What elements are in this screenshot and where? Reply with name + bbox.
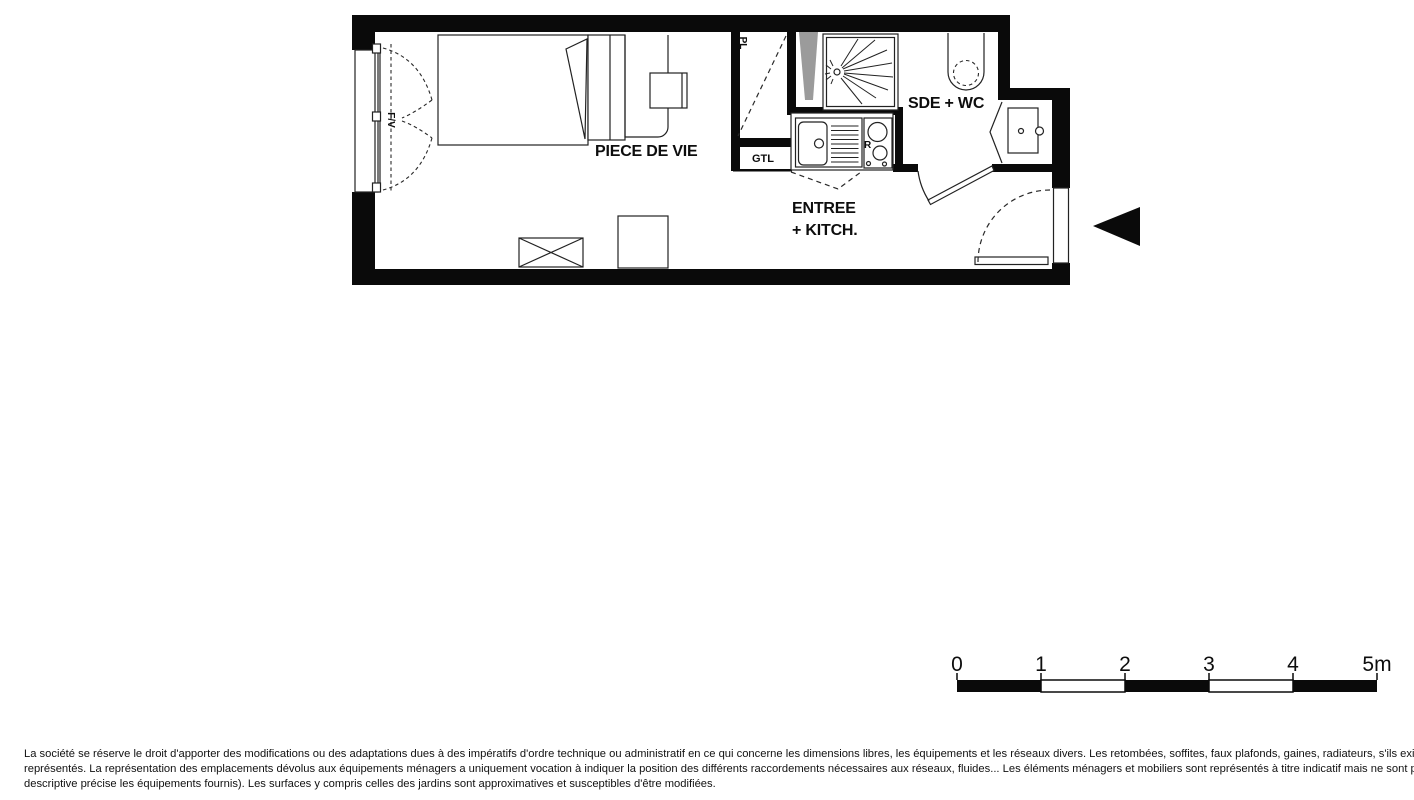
disclaimer-line-3: descriptive précise les équipements four…: [24, 777, 1394, 792]
scale-tick-0: 0: [951, 653, 963, 676]
window-label: F/V: [385, 112, 396, 128]
scale-tick-3: 3: [1203, 653, 1215, 676]
disclaimer: La société se réserve le droit d'apporte…: [24, 747, 1394, 791]
fridge-label: R: [864, 140, 872, 151]
scale-tick-2: 2: [1119, 653, 1131, 676]
folding-door: [990, 102, 1002, 163]
entrance-door-leaf: [975, 257, 1048, 265]
living-room-label: PIECE DE VIE: [595, 143, 698, 160]
bathroom-door: [918, 166, 994, 205]
window-assembly: F/V: [355, 44, 432, 192]
washbasin: [1008, 108, 1044, 153]
disclaimer-line-2: représentés. La représentation des empla…: [24, 762, 1394, 777]
desk-chair: [650, 73, 687, 108]
floor-plan-canvas: F/V PL GTL: [0, 0, 1414, 800]
toilet: [948, 33, 984, 90]
bathroom-label: SDE + WC: [908, 95, 985, 112]
scale-bar: 0 1 2 3 4 5m: [951, 653, 1391, 692]
scale-tick-5m: 5m: [1362, 653, 1391, 676]
kitchen-provision-dashes: [791, 172, 861, 189]
closet-label: PL: [737, 37, 748, 50]
shelf-unit: [588, 35, 625, 140]
coffee-table: [519, 238, 583, 267]
technical-duct-box: GTL: [752, 153, 774, 165]
side-table: [618, 216, 668, 268]
scale-tick-4: 4: [1287, 653, 1299, 676]
closet: PL: [737, 36, 786, 136]
bed: [438, 35, 588, 145]
shower: [823, 34, 898, 110]
kitchenette: R: [791, 113, 893, 189]
entrance-arrow: [1093, 207, 1140, 246]
scale-tick-1: 1: [1035, 653, 1047, 676]
page: { "floor_plan": { "room_labels": { "livi…: [0, 0, 1414, 800]
entry-label-line2: + KITCH.: [792, 222, 858, 239]
disclaimer-line-1: La société se réserve le droit d'apporte…: [24, 747, 1394, 762]
entrance-door: [975, 188, 1069, 265]
gtl-label: GTL: [752, 153, 774, 165]
plumbing-duct: [799, 32, 818, 100]
entry-label-line1: ENTREE: [792, 200, 856, 217]
